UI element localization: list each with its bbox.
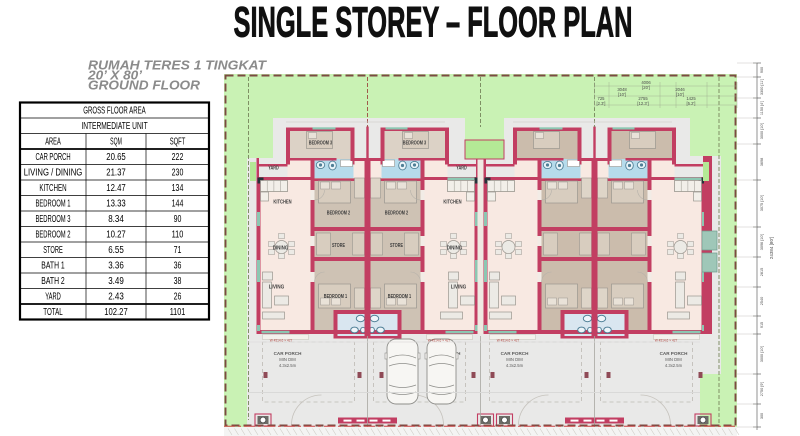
- svg-text:BATH 2: BATH 2: [41, 276, 65, 287]
- svg-text:915: 915: [760, 322, 764, 328]
- svg-text:DINING: DINING: [447, 246, 463, 252]
- svg-text:[12.3']: [12.3']: [637, 101, 648, 106]
- svg-text:LIVING: LIVING: [269, 285, 285, 291]
- svg-text:KITCHEN: KITCHEN: [443, 200, 462, 206]
- svg-text:CAR PORCH: CAR PORCH: [660, 351, 689, 356]
- svg-text:BEDROOM 1: BEDROOM 1: [35, 199, 70, 210]
- svg-text:BEDROOM 3: BEDROOM 3: [403, 141, 427, 147]
- svg-text:INTERMEDIATE UNIT: INTERMEDIATE UNIT: [81, 121, 147, 132]
- svg-text:[5.2']: [5.2']: [687, 101, 696, 106]
- svg-text:2815: 2815: [760, 268, 764, 276]
- svg-text:36: 36: [174, 261, 182, 272]
- svg-text:[2.3']: [2.3']: [597, 101, 606, 106]
- svg-text:[20']: [20']: [642, 85, 650, 90]
- svg-text:BATH 1: BATH 1: [41, 261, 65, 272]
- svg-text:4.3x2.5m: 4.3x2.5m: [665, 363, 683, 368]
- svg-text:SINGLE STOREY – FLOOR PLAN: SINGLE STOREY – FLOOR PLAN: [234, 0, 633, 47]
- svg-text:BEDROOM 2: BEDROOM 2: [385, 211, 409, 217]
- svg-text:KITCHEN: KITCHEN: [273, 200, 292, 206]
- svg-text:YARD: YARD: [268, 166, 279, 172]
- svg-text:230: 230: [172, 168, 184, 179]
- svg-text:300: 300: [760, 413, 764, 419]
- svg-text:SQFT: SQFT: [170, 137, 186, 148]
- svg-text:4.3x2.5m: 4.3x2.5m: [506, 363, 524, 368]
- svg-text:102.27: 102.27: [104, 307, 128, 318]
- svg-text:BEDROOM 2: BEDROOM 2: [35, 230, 70, 241]
- svg-text:[10']: [10']: [618, 92, 626, 97]
- svg-text:6.55: 6.55: [108, 245, 124, 256]
- svg-text:4.3x2.5m: 4.3x2.5m: [279, 363, 297, 368]
- svg-text:DINING: DINING: [273, 246, 289, 252]
- svg-text:1150 [4']: 1150 [4']: [760, 101, 764, 115]
- svg-text:3075 [10']: 3075 [10']: [760, 195, 764, 212]
- svg-text:BEDROOM 3: BEDROOM 3: [35, 214, 70, 225]
- svg-text:3096 [10']: 3096 [10']: [760, 234, 764, 251]
- svg-text:110: 110: [172, 230, 184, 241]
- svg-text:2.43: 2.43: [108, 292, 124, 303]
- svg-text:GROUND FLOOR: GROUND FLOOR: [88, 79, 200, 93]
- svg-text:CAR PORCH: CAR PORCH: [501, 351, 530, 356]
- svg-text:24384 [80']: 24384 [80']: [769, 237, 774, 259]
- svg-text:13.33: 13.33: [106, 199, 126, 210]
- svg-text:10.27: 10.27: [106, 230, 126, 241]
- svg-text:38: 38: [174, 276, 182, 287]
- svg-text:222: 222: [172, 152, 184, 163]
- svg-text:STORE: STORE: [332, 243, 345, 249]
- svg-text:STORE: STORE: [390, 243, 403, 249]
- svg-text:26: 26: [174, 292, 182, 303]
- svg-text:3000 [10']: 3000 [10']: [760, 123, 764, 140]
- svg-text:8.34: 8.34: [108, 214, 124, 225]
- svg-text:3.36: 3.36: [108, 261, 124, 272]
- svg-text:CAR PORCH: CAR PORCH: [35, 152, 70, 163]
- svg-text:CAR PORCH: CAR PORCH: [274, 351, 303, 356]
- svg-text:2750 [9']: 2750 [9']: [760, 382, 764, 396]
- svg-text:KITCHEN: KITCHEN: [39, 183, 66, 194]
- svg-text:MIN DIM: MIN DIM: [279, 357, 296, 362]
- svg-text:12.47: 12.47: [106, 183, 126, 194]
- svg-text:21.37: 21.37: [106, 168, 126, 179]
- svg-text:20.65: 20.65: [106, 152, 126, 163]
- svg-text:AREA: AREA: [45, 137, 61, 148]
- svg-text:1101: 1101: [170, 307, 186, 318]
- svg-text:BEDROOM 1: BEDROOM 1: [388, 294, 412, 300]
- svg-text:BEDROOM 1: BEDROOM 1: [324, 294, 348, 300]
- svg-text:YARD: YARD: [45, 292, 61, 303]
- svg-text:MIN DIM: MIN DIM: [665, 357, 682, 362]
- svg-text:134: 134: [172, 183, 184, 194]
- svg-text:YARD: YARD: [456, 166, 467, 172]
- svg-text:3300 [11']: 3300 [11']: [760, 79, 764, 95]
- svg-text:STORE: STORE: [43, 245, 63, 256]
- svg-text:3.49: 3.49: [108, 276, 124, 287]
- svg-text:LIVING: LIVING: [451, 285, 467, 291]
- svg-text:3000 [10']: 3000 [10']: [760, 346, 764, 363]
- svg-text:144: 144: [172, 199, 184, 210]
- svg-text:90: 90: [174, 214, 182, 225]
- svg-text:71: 71: [174, 245, 182, 256]
- svg-text:900: 900: [760, 67, 764, 73]
- svg-text:MIN DIM: MIN DIM: [506, 357, 523, 362]
- svg-text:BEDROOM 3: BEDROOM 3: [309, 141, 333, 147]
- svg-text:[10']: [10']: [676, 92, 684, 97]
- svg-text:BEDROOM 2: BEDROOM 2: [327, 211, 351, 217]
- svg-text:LIVING / DINING: LIVING / DINING: [24, 168, 83, 179]
- svg-text:TOTAL: TOTAL: [43, 307, 63, 318]
- svg-text:GROSS FLOOR AREA: GROSS FLOOR AREA: [83, 106, 146, 117]
- svg-text:SQM: SQM: [110, 137, 122, 148]
- svg-text:3698: 3698: [760, 158, 764, 166]
- svg-text:2540: 2540: [760, 297, 764, 305]
